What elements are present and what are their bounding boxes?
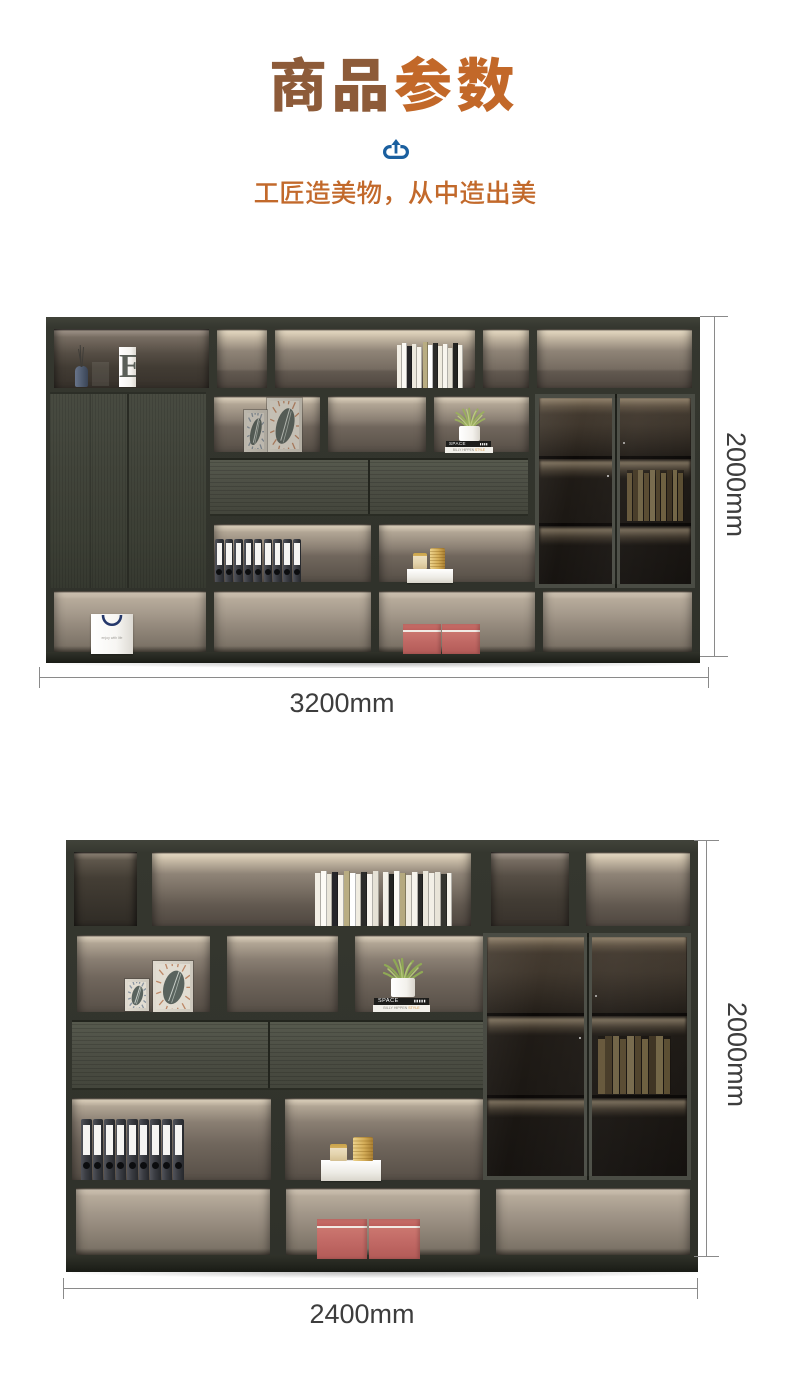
- svg-text:enjoy with life: enjoy with life: [101, 636, 122, 640]
